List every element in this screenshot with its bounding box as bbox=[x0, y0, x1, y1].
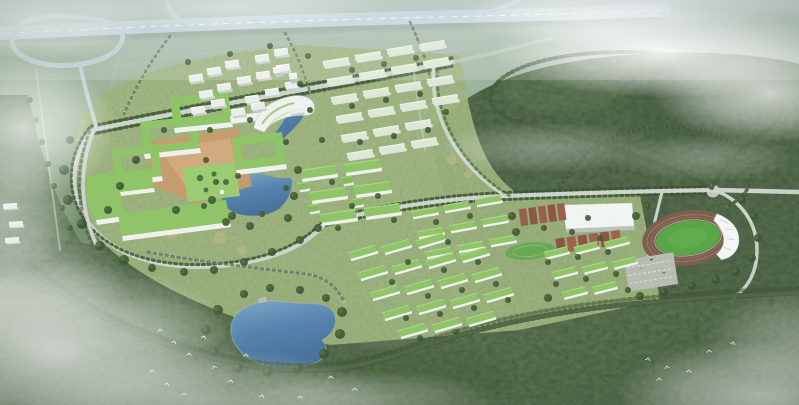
campus-aerial-rendering bbox=[0, 0, 799, 405]
vignette bbox=[0, 0, 799, 405]
aerial-rendering-stage: Elevated highway with loop interchange a… bbox=[0, 0, 799, 405]
